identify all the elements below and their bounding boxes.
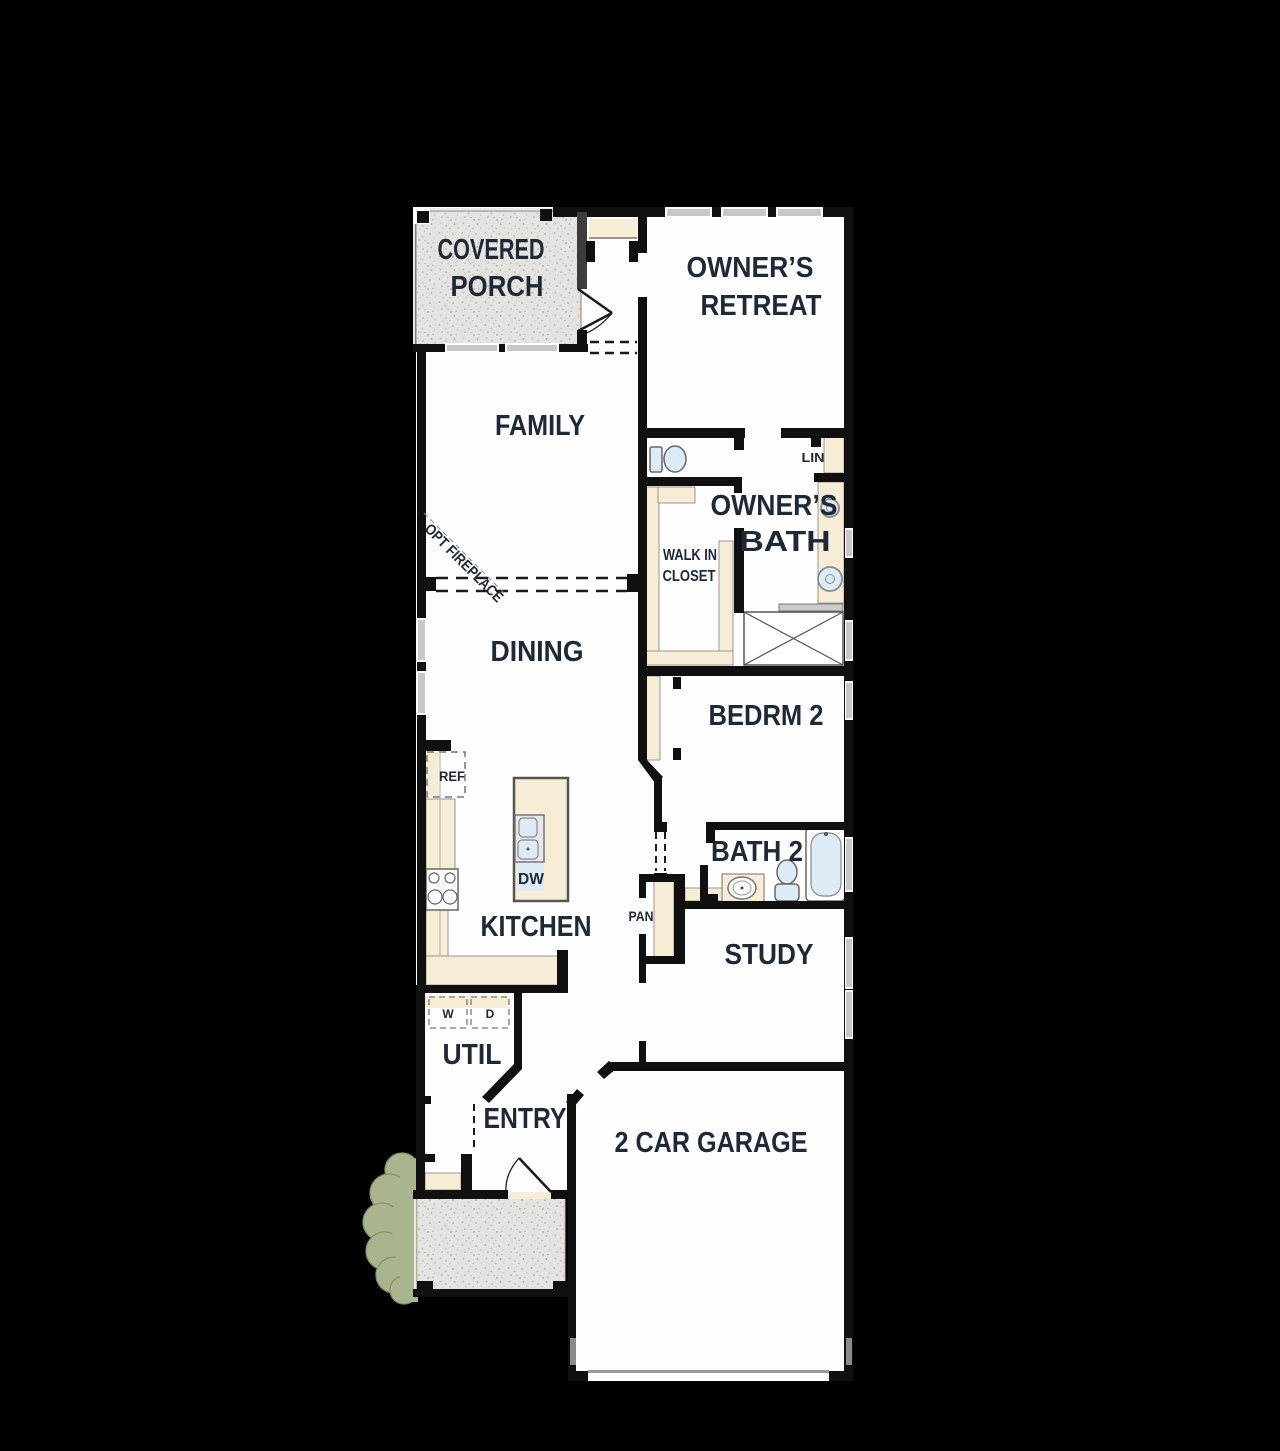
svg-text:STUDY: STUDY xyxy=(725,939,814,971)
svg-text:PAN: PAN xyxy=(629,908,654,924)
svg-text:DINING: DINING xyxy=(491,636,584,668)
svg-text:OWNER’S: OWNER’S xyxy=(687,252,814,284)
svg-text:2 CAR GARAGE: 2 CAR GARAGE xyxy=(615,1127,808,1159)
svg-text:FAMILY: FAMILY xyxy=(495,410,585,442)
svg-text:LIN: LIN xyxy=(802,450,825,465)
svg-text:CLOSET: CLOSET xyxy=(663,568,716,585)
svg-text:DW: DW xyxy=(518,871,545,888)
svg-text:BATH 2: BATH 2 xyxy=(711,836,803,868)
svg-text:WALK IN: WALK IN xyxy=(663,547,717,564)
svg-text:COVERED: COVERED xyxy=(438,234,545,266)
svg-text:UTIL: UTIL xyxy=(443,1039,502,1071)
svg-text:RETREAT: RETREAT xyxy=(701,290,822,322)
svg-text:PORCH: PORCH xyxy=(451,271,544,303)
svg-text:BATH: BATH xyxy=(740,526,831,558)
svg-text:OWNER’S: OWNER’S xyxy=(711,490,838,522)
svg-text:W: W xyxy=(442,1007,454,1021)
svg-text:KITCHEN: KITCHEN xyxy=(481,911,592,943)
svg-text:BEDRM 2: BEDRM 2 xyxy=(709,700,824,732)
svg-text:ENTRY: ENTRY xyxy=(484,1103,567,1135)
svg-text:D: D xyxy=(486,1007,495,1021)
svg-text:REF: REF xyxy=(439,768,465,784)
